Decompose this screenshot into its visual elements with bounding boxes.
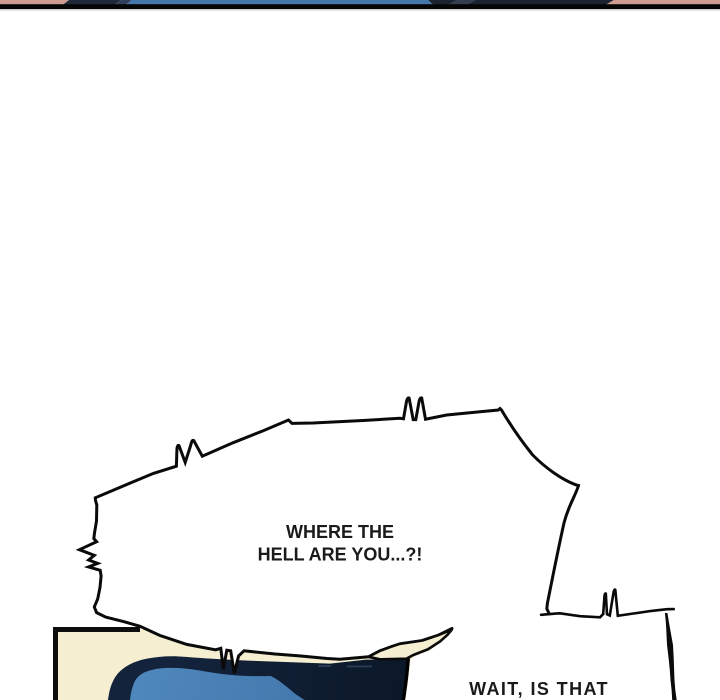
svg-text:WHERE THE: WHERE THE: [286, 522, 394, 542]
svg-text:HELL ARE YOU...?!: HELL ARE YOU...?!: [258, 545, 423, 565]
svg-text:WAIT, IS THAT: WAIT, IS THAT: [469, 679, 609, 699]
